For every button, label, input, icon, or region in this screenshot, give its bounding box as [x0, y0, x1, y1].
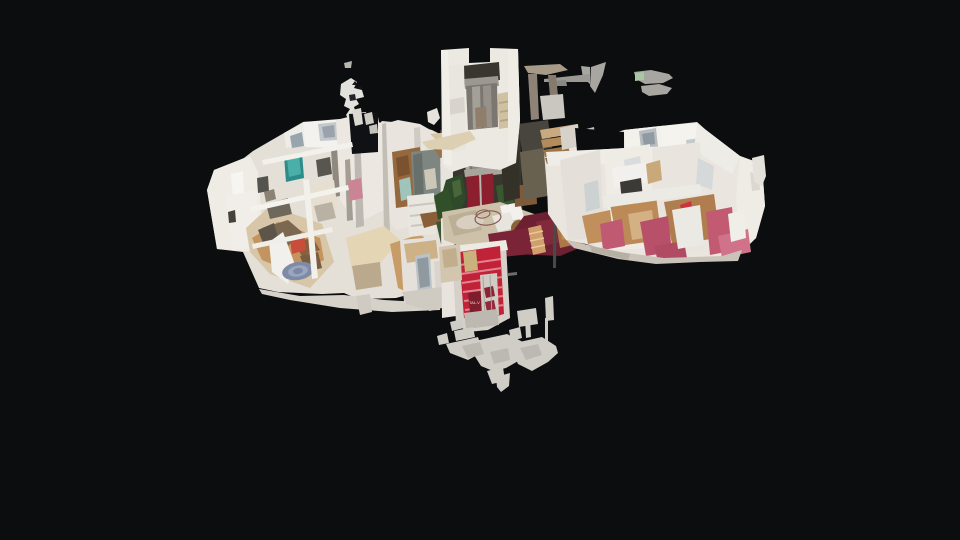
svg-text:TAL.V: TAL.V [469, 300, 480, 305]
